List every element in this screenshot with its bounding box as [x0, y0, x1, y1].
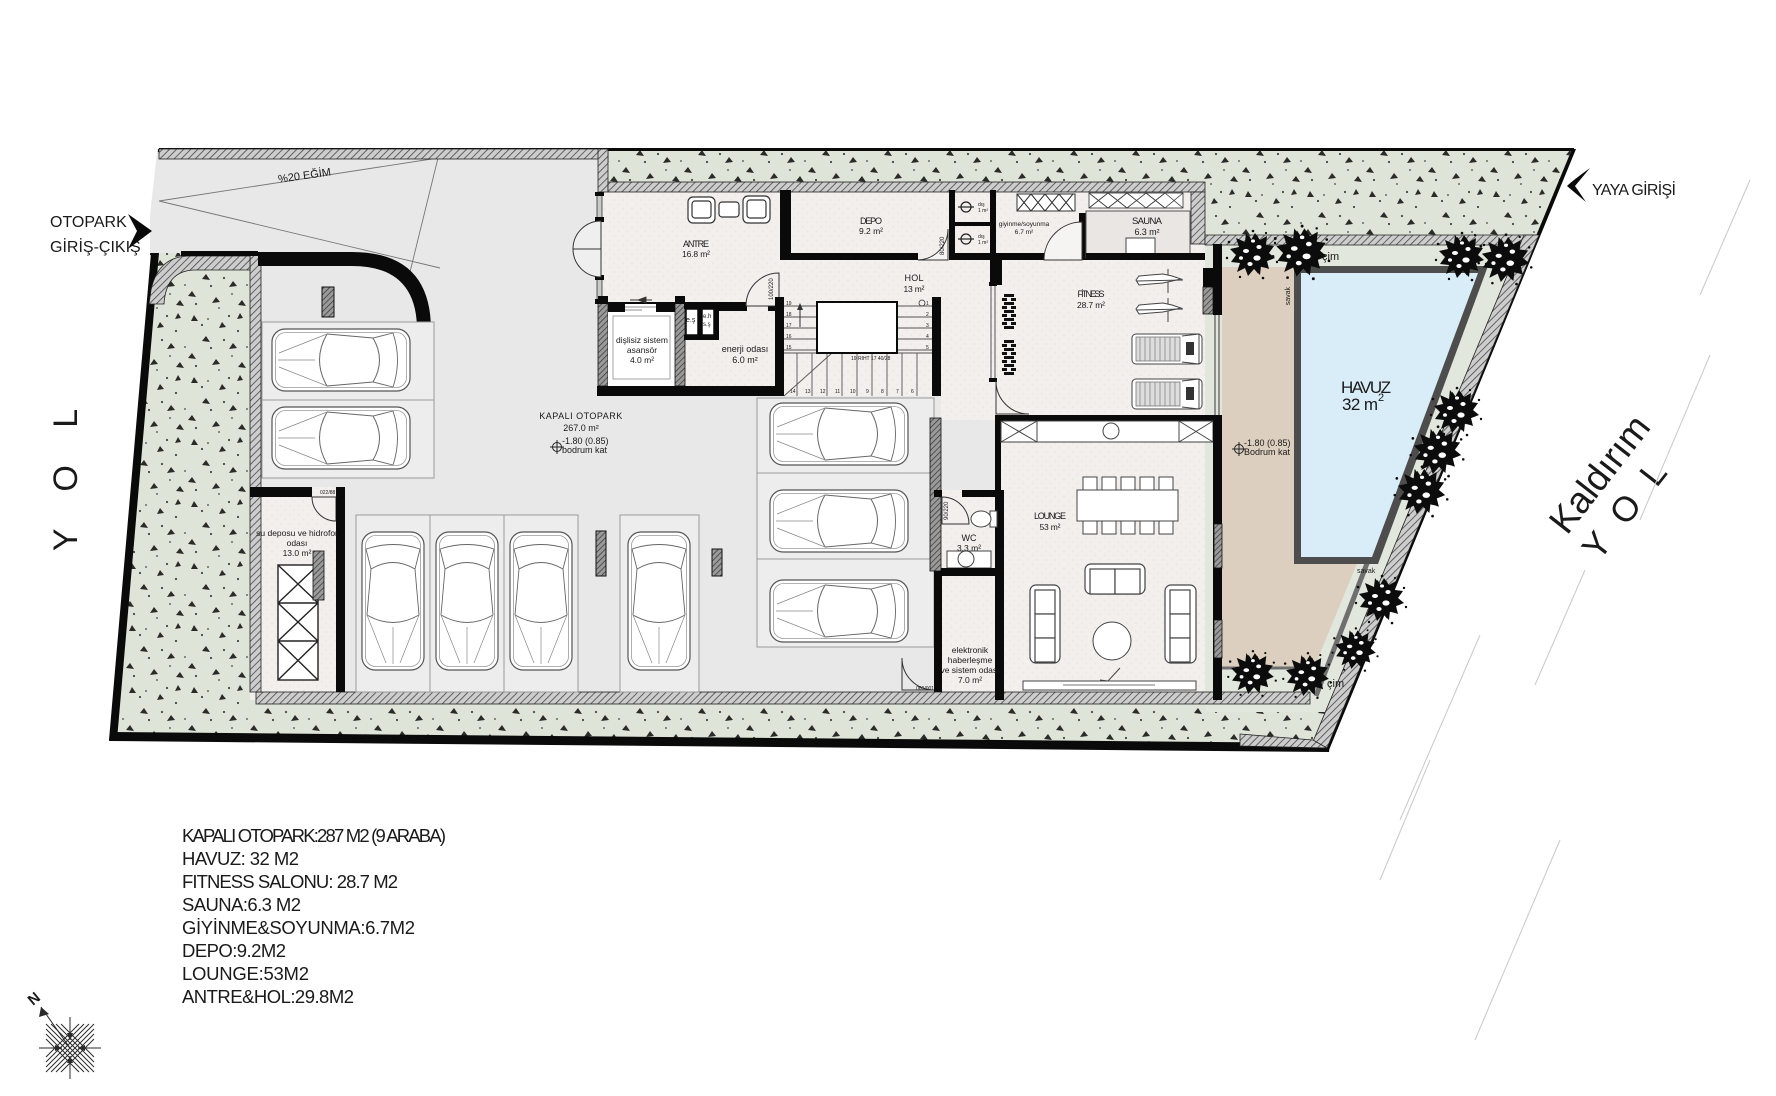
svg-text:80/220: 80/220 — [940, 236, 946, 255]
svg-text:GİRİŞ-ÇIKIŞ: GİRİŞ-ÇIKIŞ — [50, 237, 141, 256]
svg-text:KAPALI OTOPARK: KAPALI OTOPARK — [539, 411, 623, 421]
svg-text:ve sistem odası: ve sistem odası — [940, 665, 999, 675]
svg-text:15: 15 — [786, 345, 792, 351]
svg-text:ANTRE&HOL:29.8M2: ANTRE&HOL:29.8M2 — [182, 986, 354, 1007]
svg-text:çim: çim — [1327, 678, 1344, 690]
svg-text:WC: WC — [962, 533, 977, 543]
svg-text:e.ş: e.ş — [686, 317, 696, 324]
svg-text:Y O L: Y O L — [47, 395, 85, 551]
svg-text:6: 6 — [911, 389, 914, 395]
svg-text:SAUNA:6.3 M2: SAUNA:6.3 M2 — [182, 894, 301, 915]
svg-text:7.0 m²: 7.0 m² — [958, 675, 982, 685]
svg-text:16: 16 — [786, 334, 792, 340]
svg-text:18: 18 — [786, 312, 792, 318]
svg-text:16.8 m²: 16.8 m² — [682, 249, 710, 259]
svg-text:LOUNGE:53M2: LOUNGE:53M2 — [182, 963, 309, 984]
svg-text:19: 19 — [786, 301, 792, 307]
svg-text:OTOPARK: OTOPARK — [50, 214, 127, 231]
svg-text:giyinme/soyunma: giyinme/soyunma — [999, 221, 1050, 228]
svg-text:100/220: 100/220 — [769, 278, 775, 300]
svg-text:asansör: asansör — [627, 345, 657, 355]
svg-text:2: 2 — [1378, 392, 1384, 404]
svg-text:ANTRE: ANTRE — [683, 239, 709, 249]
svg-text:6.3 m²: 6.3 m² — [1135, 227, 1160, 237]
svg-text:5: 5 — [926, 345, 929, 351]
svg-text:DEPO:9.2M2: DEPO:9.2M2 — [182, 940, 286, 961]
svg-text:enerji odası: enerji odası — [722, 344, 769, 354]
svg-text:FITNESS SALONU: 28.7 M2: FITNESS SALONU: 28.7 M2 — [182, 871, 398, 892]
svg-text:HOL: HOL — [905, 273, 924, 283]
svg-text:11: 11 — [835, 389, 840, 395]
svg-text:12: 12 — [820, 389, 826, 395]
svg-text:17: 17 — [786, 323, 792, 329]
svg-text:267.0 m²: 267.0 m² — [563, 423, 599, 433]
svg-text:DEPO: DEPO — [860, 216, 882, 226]
svg-text:SAUNA: SAUNA — [1132, 216, 1163, 227]
svg-text:dişlisiz sistem: dişlisiz sistem — [616, 335, 668, 345]
svg-text:Bodrum kat: Bodrum kat — [1244, 447, 1291, 457]
svg-text:LOUNGE: LOUNGE — [1034, 511, 1066, 521]
svg-text:19 RIHT 17 40/28: 19 RIHT 17 40/28 — [851, 356, 891, 362]
svg-text:060/001: 060/001 — [916, 686, 934, 692]
svg-text:haberleşme: haberleşme — [948, 655, 993, 665]
svg-text:GİYİNME&SOYUNMA:6.7M2: GİYİNME&SOYUNMA:6.7M2 — [182, 917, 415, 938]
svg-text:1 m²: 1 m² — [978, 208, 988, 214]
svg-text:odası: odası — [287, 538, 308, 548]
svg-text:10: 10 — [850, 389, 856, 395]
svg-text:4.0 m²: 4.0 m² — [630, 355, 654, 365]
svg-text:90/220: 90/220 — [944, 501, 950, 520]
svg-text:53 m²: 53 m² — [1040, 522, 1061, 532]
svg-text:022/88: 022/88 — [320, 490, 336, 496]
svg-text:HAVUZ: 32 M2: HAVUZ: 32 M2 — [182, 848, 299, 869]
svg-text:9: 9 — [866, 389, 869, 395]
svg-text:6.7 m²: 6.7 m² — [1015, 229, 1034, 236]
svg-text:bodrum kat: bodrum kat — [562, 445, 608, 455]
svg-text:32 m: 32 m — [1342, 395, 1378, 414]
svg-text:3: 3 — [926, 323, 929, 329]
svg-text:4: 4 — [926, 334, 929, 340]
svg-text:elektronik: elektronik — [952, 645, 989, 655]
svg-text:s.ş: s.ş — [703, 322, 711, 328]
svg-text:13 m²: 13 m² — [904, 284, 925, 294]
svg-text:savak: savak — [1285, 287, 1292, 306]
svg-text:2: 2 — [926, 312, 929, 318]
svg-text:1 m²: 1 m² — [978, 240, 988, 246]
svg-text:FİTNESS: FİTNESS — [1078, 289, 1105, 299]
svg-text:28.7 m²: 28.7 m² — [1077, 300, 1105, 310]
svg-text:7: 7 — [896, 389, 899, 395]
svg-text:YAYA GİRİŞİ: YAYA GİRİŞİ — [1592, 180, 1676, 199]
svg-text:14: 14 — [790, 389, 796, 395]
svg-text:KAPALI OTOPARK:287 M2 (9 ARABA: KAPALI OTOPARK:287 M2 (9 ARABA) — [182, 825, 446, 846]
svg-text:6.0 m²: 6.0 m² — [732, 355, 758, 365]
svg-text:su deposu ve hidrofor: su deposu ve hidrofor — [256, 528, 338, 538]
svg-text:e.h: e.h — [703, 314, 711, 320]
svg-text:13: 13 — [805, 389, 811, 395]
svg-text:8: 8 — [881, 389, 884, 395]
svg-text:13.0 m²: 13.0 m² — [283, 548, 312, 558]
svg-text:1: 1 — [926, 301, 929, 307]
svg-text:savak: savak — [1357, 568, 1376, 575]
svg-text:9.2 m²: 9.2 m² — [859, 226, 883, 236]
